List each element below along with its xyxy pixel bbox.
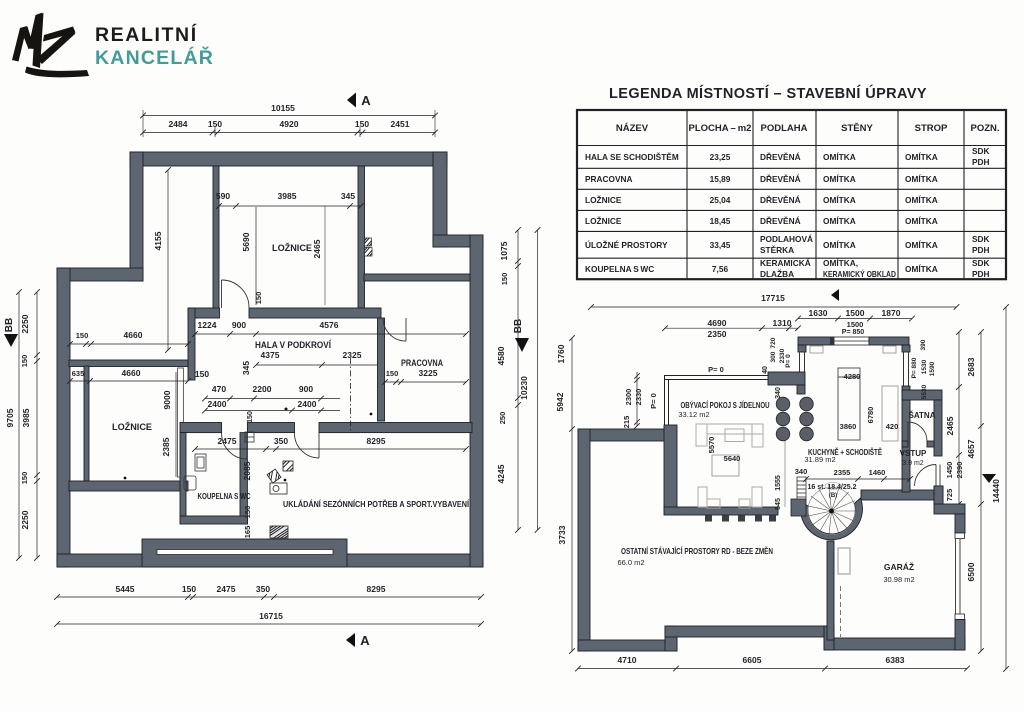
svg-text:1310: 1310: [773, 318, 792, 328]
svg-text:1450: 1450: [945, 462, 954, 479]
svg-text:OMÍTKA: OMÍTKA: [823, 152, 856, 162]
svg-text:OMÍTKA: OMÍTKA: [823, 195, 856, 205]
svg-text:4710: 4710: [618, 655, 637, 665]
svg-text:345: 345: [341, 191, 355, 201]
svg-text:4690: 4690: [708, 318, 727, 328]
svg-text:150: 150: [243, 506, 252, 519]
svg-text:OBÝVACÍ POKOJ S JÍDELNOU: OBÝVACÍ POKOJ S JÍDELNOU: [681, 399, 770, 410]
svg-text:LOŽNICE: LOŽNICE: [112, 421, 152, 432]
svg-text:2390: 2390: [955, 462, 964, 479]
svg-text:OMÍTKA: OMÍTKA: [823, 216, 856, 226]
svg-text:300: 300: [770, 351, 777, 362]
svg-text:DŘEVĚNÁ: DŘEVĚNÁ: [760, 151, 801, 162]
svg-text:KOUPELNA S WC: KOUPELNA S WC: [585, 264, 654, 274]
svg-text:5942: 5942: [555, 392, 565, 411]
svg-text:PRACOVNA: PRACOVNA: [401, 358, 443, 368]
svg-text:2200: 2200: [253, 384, 272, 394]
svg-text:ÚLOŽNÉ PROSTORY: ÚLOŽNÉ PROSTORY: [585, 239, 668, 250]
svg-text:1500: 1500: [846, 308, 865, 318]
svg-text:PODLAHOVÁ: PODLAHOVÁ: [760, 234, 813, 244]
svg-text:165: 165: [243, 526, 252, 539]
svg-text:KERAMICKÝ OBKLAD: KERAMICKÝ OBKLAD: [823, 268, 896, 279]
svg-text:DŘEVĚNÁ: DŘEVĚNÁ: [760, 215, 801, 226]
svg-text:4660: 4660: [122, 368, 141, 378]
svg-text:900: 900: [299, 384, 313, 394]
svg-text:5690: 5690: [241, 232, 251, 251]
svg-text:2355: 2355: [834, 468, 851, 477]
svg-text:1460: 1460: [869, 468, 886, 477]
svg-text:900: 900: [232, 320, 246, 330]
svg-text:33,45: 33,45: [710, 240, 731, 250]
svg-text:PLOCHA – m2: PLOCHA – m2: [689, 123, 752, 134]
svg-text:GARÁŽ: GARÁŽ: [884, 561, 914, 572]
svg-text:KERAMICKÁ: KERAMICKÁ: [760, 258, 811, 268]
svg-text:3.9 m2: 3.9 m2: [902, 460, 924, 467]
svg-text:635: 635: [72, 369, 85, 378]
svg-text:250: 250: [498, 412, 507, 425]
svg-text:1870: 1870: [882, 308, 901, 318]
svg-text:10155: 10155: [271, 103, 295, 113]
svg-text:5530: 5530: [921, 384, 928, 399]
svg-text:4375: 4375: [261, 350, 280, 360]
svg-text:2300: 2300: [624, 389, 633, 406]
svg-text:DLAŽBA: DLAŽBA: [760, 268, 794, 279]
svg-text:PRACOVNA: PRACOVNA: [585, 174, 632, 184]
svg-text:3225: 3225: [419, 368, 438, 378]
svg-text:NÁZEV: NÁZEV: [616, 123, 649, 134]
svg-text:150: 150: [20, 472, 29, 485]
svg-text:2475: 2475: [218, 436, 237, 446]
svg-text:15,89: 15,89: [710, 174, 731, 184]
svg-text:2465: 2465: [945, 416, 955, 435]
svg-text:UKLÁDÁNÍ SEZÓNNÍCH POTŘEB A SP: UKLÁDÁNÍ SEZÓNNÍCH POTŘEB A SPORT.VYBAVE…: [283, 500, 470, 509]
svg-text:4155: 4155: [153, 231, 163, 250]
svg-text:KANCELÁŘ: KANCELÁŘ: [95, 45, 214, 69]
svg-text:PODLAHA: PODLAHA: [761, 123, 808, 134]
svg-text:HALA SE SCHODIŠTĚM: HALA SE SCHODIŠTĚM: [585, 151, 679, 162]
svg-text:2465: 2465: [312, 239, 322, 258]
svg-text:OMÍTKA: OMÍTKA: [905, 264, 938, 274]
svg-text:SDK: SDK: [972, 258, 990, 268]
svg-text:OMÍTKA: OMÍTKA: [905, 152, 938, 162]
svg-text:1500: 1500: [847, 320, 864, 329]
svg-text:1075: 1075: [499, 241, 509, 260]
svg-text:(B): (B): [829, 493, 837, 499]
svg-text:2385: 2385: [161, 437, 171, 456]
svg-text:470: 470: [212, 384, 226, 394]
svg-text:5445: 5445: [116, 584, 135, 594]
svg-text:4245: 4245: [496, 464, 506, 483]
svg-text:3985: 3985: [21, 408, 31, 427]
svg-text:2250: 2250: [20, 510, 30, 529]
svg-text:4280: 4280: [844, 372, 861, 381]
svg-text:2325: 2325: [343, 350, 362, 360]
svg-text:LOŽNICE: LOŽNICE: [585, 194, 622, 205]
svg-text:18,45: 18,45: [710, 216, 731, 226]
svg-text:4657: 4657: [966, 439, 976, 458]
svg-text:OMÍTKA: OMÍTKA: [823, 174, 856, 184]
svg-text:16 st. 18.4/25.2: 16 st. 18.4/25.2: [807, 484, 856, 491]
svg-text:40: 40: [762, 366, 769, 374]
svg-text:SDK: SDK: [972, 234, 990, 244]
svg-text:OSTATNÍ STÁVAJÍCÍ PROSTORY RD: OSTATNÍ STÁVAJÍCÍ PROSTORY RD - BEZE ZMĚ…: [621, 545, 773, 556]
svg-text:420: 420: [886, 422, 899, 431]
svg-text:OMÍTKA,: OMÍTKA,: [823, 258, 858, 268]
svg-text:OMÍTKA: OMÍTKA: [905, 195, 938, 205]
svg-text:LOŽNICE: LOŽNICE: [272, 242, 312, 253]
svg-text:1530: 1530: [921, 359, 928, 374]
svg-text:2400: 2400: [298, 399, 317, 409]
svg-text:SDK: SDK: [972, 146, 990, 156]
svg-text:4920: 4920: [280, 119, 299, 129]
svg-text:OMÍTKA: OMÍTKA: [905, 240, 938, 250]
svg-text:2350: 2350: [708, 329, 727, 339]
svg-text:DŘEVĚNÁ: DŘEVĚNÁ: [760, 194, 801, 205]
svg-text:17715: 17715: [761, 293, 785, 303]
svg-text:5570: 5570: [707, 437, 716, 454]
svg-text:350: 350: [274, 436, 288, 446]
svg-text:STROP: STROP: [915, 123, 948, 134]
svg-text:HALA V PODKROVÍ: HALA V PODKROVÍ: [255, 340, 331, 350]
svg-text:5640: 5640: [724, 454, 741, 463]
svg-text:2250: 2250: [20, 314, 30, 333]
svg-text:1760: 1760: [556, 344, 566, 363]
svg-text:4576: 4576: [320, 320, 339, 330]
svg-text:OMÍTKA: OMÍTKA: [905, 174, 938, 184]
svg-text:6780: 6780: [866, 407, 875, 424]
svg-text:340: 340: [775, 387, 782, 399]
svg-text:66.0 m2: 66.0 m2: [617, 558, 644, 567]
svg-text:720: 720: [770, 337, 777, 348]
svg-text:BB: BB: [4, 318, 15, 332]
svg-text:4580: 4580: [496, 346, 506, 365]
svg-text:1555: 1555: [775, 475, 782, 491]
svg-text:150: 150: [500, 273, 509, 286]
svg-text:1590: 1590: [929, 361, 936, 376]
svg-text:P= 880: P= 880: [911, 357, 918, 378]
svg-text:OMÍTKA: OMÍTKA: [823, 240, 856, 250]
svg-text:23,25: 23,25: [710, 152, 731, 162]
svg-text:2330: 2330: [634, 389, 643, 406]
svg-text:2451: 2451: [391, 119, 410, 129]
svg-text:9000: 9000: [162, 390, 172, 409]
svg-text:14440: 14440: [991, 479, 1001, 503]
svg-text:2085: 2085: [242, 461, 252, 480]
svg-text:150: 150: [355, 119, 369, 129]
svg-text:10230: 10230: [519, 376, 529, 400]
svg-text:150: 150: [76, 331, 89, 340]
svg-text:590: 590: [216, 191, 230, 201]
svg-text:390: 390: [920, 339, 927, 350]
svg-text:340: 340: [795, 467, 808, 476]
svg-text:33.12 m2: 33.12 m2: [678, 410, 709, 419]
svg-text:6383: 6383: [886, 655, 905, 665]
svg-text:REALITNÍ: REALITNÍ: [95, 23, 198, 46]
svg-text:2484: 2484: [169, 119, 188, 129]
svg-text:25,04: 25,04: [710, 195, 731, 205]
svg-text:P= 0: P= 0: [785, 354, 792, 368]
svg-text:VSTUP: VSTUP: [900, 449, 927, 458]
svg-text:POZN.: POZN.: [970, 123, 999, 134]
svg-text:LOŽNICE: LOŽNICE: [585, 215, 622, 226]
svg-text:8295: 8295: [367, 584, 386, 594]
svg-text:4660: 4660: [124, 330, 143, 340]
svg-text:PDH: PDH: [972, 245, 990, 255]
svg-text:P= 850: P= 850: [842, 329, 864, 336]
svg-text:215: 215: [622, 416, 631, 429]
svg-text:16715: 16715: [259, 611, 283, 621]
svg-text:150: 150: [254, 292, 263, 305]
svg-text:P= 0: P= 0: [708, 365, 724, 374]
svg-text:LEGENDA MÍSTNOSTÍ – STAVEBNÍ Ú: LEGENDA MÍSTNOSTÍ – STAVEBNÍ ÚPRAVY: [609, 84, 927, 102]
svg-text:2475: 2475: [217, 584, 236, 594]
svg-text:3733: 3733: [557, 525, 567, 544]
svg-text:OMÍTKA: OMÍTKA: [905, 216, 938, 226]
svg-text:1630: 1630: [809, 308, 828, 318]
svg-text:1224: 1224: [198, 320, 217, 330]
svg-text:30.98 m2: 30.98 m2: [883, 575, 914, 584]
svg-text:150: 150: [247, 411, 254, 423]
svg-text:3985: 3985: [278, 191, 297, 201]
svg-text:150: 150: [195, 369, 209, 379]
svg-text:BB: BB: [513, 319, 524, 333]
svg-text:31.89 m2: 31.89 m2: [804, 455, 835, 464]
svg-text:9705: 9705: [5, 408, 15, 427]
svg-text:KOUPELNA S WC: KOUPELNA S WC: [198, 492, 251, 501]
svg-text:7,56: 7,56: [712, 264, 729, 274]
svg-text:8295: 8295: [367, 436, 386, 446]
svg-text:150: 150: [386, 369, 399, 378]
svg-text:350: 350: [256, 584, 270, 594]
svg-text:150: 150: [182, 584, 196, 594]
svg-text:STĚRKA: STĚRKA: [760, 244, 794, 255]
svg-text:725: 725: [945, 489, 954, 502]
svg-text:2400: 2400: [208, 399, 227, 409]
svg-text:A: A: [361, 93, 371, 108]
svg-text:PDH: PDH: [972, 157, 990, 167]
svg-text:DŘEVĚNÁ: DŘEVĚNÁ: [760, 173, 801, 184]
svg-text:PDH: PDH: [972, 269, 990, 279]
svg-text:545: 545: [775, 498, 782, 510]
svg-text:STĚNY: STĚNY: [841, 122, 873, 134]
svg-text:3860: 3860: [840, 422, 857, 431]
svg-text:A: A: [360, 633, 370, 648]
svg-text:ŠATNA: ŠATNA: [909, 411, 936, 420]
svg-text:345: 345: [241, 361, 251, 375]
svg-text:6605: 6605: [743, 655, 762, 665]
svg-text:150: 150: [20, 355, 29, 368]
svg-text:2683: 2683: [966, 357, 976, 376]
svg-text:P= 0: P= 0: [649, 393, 658, 409]
svg-text:6500: 6500: [966, 562, 976, 581]
